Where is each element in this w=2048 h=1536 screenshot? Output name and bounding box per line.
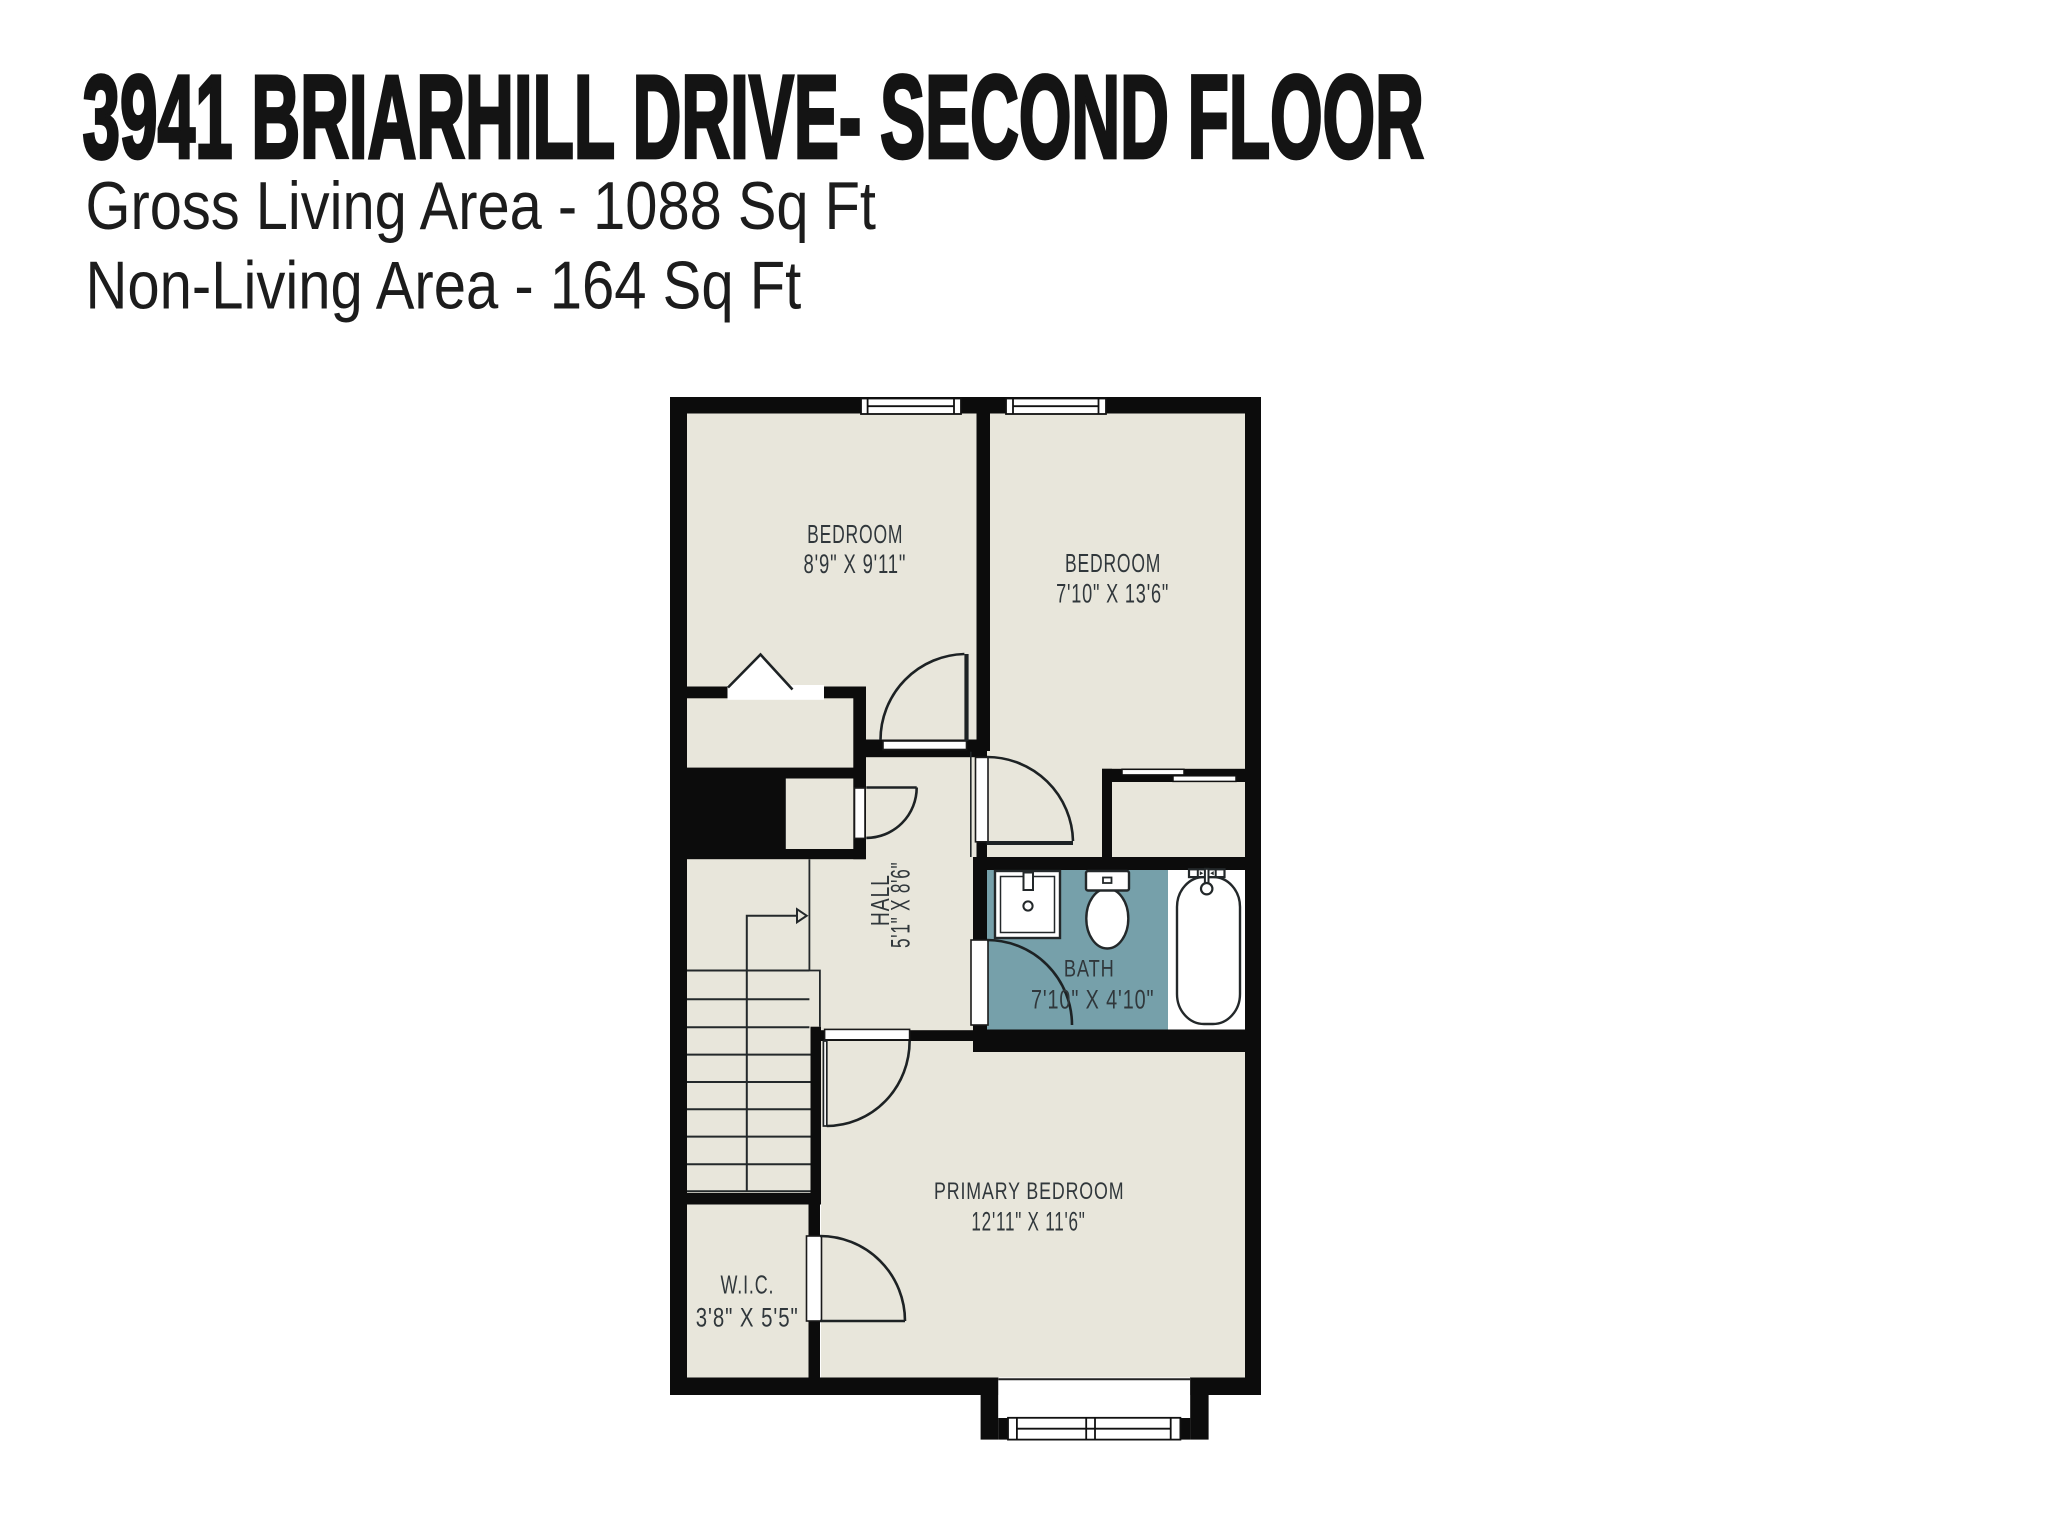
svg-text:W.I.C.: W.I.C. [721,1271,775,1300]
svg-text:Non-Living Area - 164 Sq Ft: Non-Living Area - 164 Sq Ft [86,248,802,323]
svg-text:BEDROOM: BEDROOM [1065,549,1161,578]
svg-text:7'10" X 4'10": 7'10" X 4'10" [1031,985,1155,1014]
svg-text:8'9" X 9'11": 8'9" X 9'11" [804,548,907,578]
svg-text:BATH: BATH [1064,955,1115,982]
svg-text:5'1" X 8'6": 5'1" X 8'6" [886,862,916,948]
svg-text:PRIMARY BEDROOM: PRIMARY BEDROOM [934,1177,1124,1204]
svg-text:Gross Living Area - 1088 Sq Ft: Gross Living Area - 1088 Sq Ft [86,169,877,244]
svg-text:3'8" X 5'5": 3'8" X 5'5" [696,1304,799,1333]
svg-text:3941 BRIARHILL DRIVE- SECOND F: 3941 BRIARHILL DRIVE- SECOND FLOOR [83,52,1424,183]
svg-text:BEDROOM: BEDROOM [807,520,903,549]
svg-text:12'11" X 11'6": 12'11" X 11'6" [971,1207,1085,1237]
svg-text:7'10" X 13'6": 7'10" X 13'6" [1056,578,1169,608]
